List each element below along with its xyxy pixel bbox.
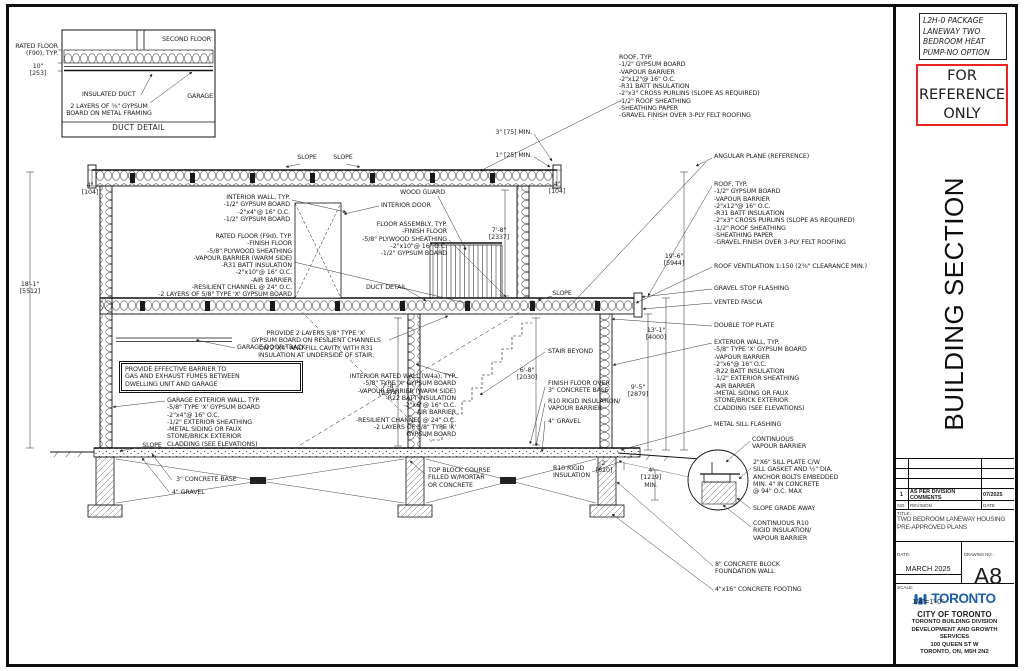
note-sill-plate: 2"X6" SILL PLATE C/W SILL GASKET AND ½" …	[753, 459, 865, 495]
reference-line: FOR	[947, 67, 977, 86]
package-line: PUMP-NO OPTION	[923, 48, 1003, 59]
package-line: L2H-0 PACKAGE	[923, 16, 1003, 27]
dim-9-5: 9'-5" [2879]	[623, 384, 653, 399]
note-cont-vb: CONTINUOUS VAPOUR BARRIER	[752, 436, 834, 451]
package-label-box: L2H-0 PACKAGE LANEWAY TWO BEDROOM HEAT P…	[919, 13, 1007, 60]
project-title: TWO BEDROOM LANEWAY HOUSING PRE-APPROVED…	[897, 516, 1012, 532]
org-line: SERVICES	[895, 634, 1014, 642]
dim-18-1: 18'-1" [5512]	[10, 281, 50, 296]
note-two-layers-gypsum: 2 LAYERS OF ⅝" GYPSUM BOARD ON METAL FRA…	[52, 103, 166, 118]
scale-cell: SCALE: 1/4"=1'-0"	[895, 574, 961, 607]
note-double-top-plate: DOUBLE TOP PLATE	[714, 322, 816, 329]
org-line: TORONTO BUILDING DIVISION	[895, 619, 1014, 627]
label-slope-top-2: SLOPE	[327, 154, 359, 161]
sheet-title-text: BUILDING SECTION	[939, 177, 970, 431]
dim-2ft: 2' [610]	[593, 460, 615, 475]
revision-header-row: NO. REVISION DATE	[895, 500, 1014, 509]
note-r10-rigid-vb: R10 RIGID INSULATION/ VAPOUR BARRIER	[548, 398, 646, 413]
revision-row-empty	[895, 468, 1014, 478]
revision-description: AS PER DIVISION COMMENTS	[909, 489, 981, 500]
duct-detail-caption: DUCT DETAIL	[62, 124, 215, 131]
drawing-sheet: SECOND FLOOR RATED FLOOR (F90), TYP. 10"…	[0, 0, 1024, 671]
dim-13-1: 13'-1" [4000]	[641, 327, 671, 342]
note-interior-wall: INTERIOR WALL, TYP. -1/2" GYPSUM BOARD -…	[160, 194, 290, 223]
date-label: DATE:	[897, 552, 910, 557]
title-panel: L2H-0 PACKAGE LANEWAY TWO BEDROOM HEAT P…	[895, 4, 1016, 667]
note-insulated-duct: INSULATED DUCT	[82, 91, 146, 98]
revision-row-empty	[895, 458, 1014, 468]
label-slope-left: SLOPE	[136, 442, 168, 449]
note-floor-assembly: FLOOR ASSEMBLY, TYP. -FINISH FLOOR -5/8"…	[317, 221, 447, 257]
title-block: 1 AS PER DIVISION COMMENTS 07/2025 NO. R…	[895, 458, 1014, 669]
note-gravel-stop: GRAVEL STOP FLASHING	[714, 285, 826, 292]
org-line: DEVELOPMENT AND GROWTH	[895, 627, 1014, 635]
reference-line: ONLY	[943, 105, 980, 124]
note-garage: GARAGE	[175, 93, 213, 100]
note-metal-sill: METAL SILL FLASHING	[714, 421, 826, 428]
dim-4ft: 4' [1219] MIN.	[637, 467, 665, 489]
label-slope-right: SLOPE	[546, 290, 578, 297]
revision-number: 1	[895, 489, 909, 500]
drawing-number: A8	[964, 563, 1012, 590]
dim-19-6: 19'-6" [5944]	[659, 253, 689, 268]
note-cont-r10: CONTINUOUS R10 RIGID INSULATION/ VAPOUR …	[753, 520, 845, 542]
for-reference-only-stamp: FOR REFERENCE ONLY	[916, 64, 1008, 126]
dim-7-8-upper: 7'-8" [2337]	[486, 227, 512, 242]
date-cell: DATE: MARCH 2025	[895, 542, 961, 574]
note-angular-plane: ANGULAR PLANE (REFERENCE)	[714, 153, 846, 160]
note-provide-2-layers: PROVIDE 2 LAYERS 5/8" TYPE 'X' GYPSUM BO…	[243, 330, 389, 359]
dim-4in-right: 4" [104]	[546, 181, 568, 196]
note-roof-vent: ROOF VENTILATION 1:150 (2⅜" CLEARANCE MI…	[714, 263, 886, 270]
dim-7-8-lower: 7'-8" [2374]	[376, 383, 402, 398]
dim-10in: 10" [253]	[22, 63, 54, 78]
note-roof-typ-right: ROOF, TYP. -1/2" GYPSUM BOARD -VAPOUR BA…	[714, 181, 886, 247]
note-concrete-base: 3" CONCRETE BASE	[176, 476, 268, 483]
revision-header-date: DATE	[981, 501, 1014, 509]
note-conc-footing: 4"x16" CONCRETE FOOTING	[715, 586, 833, 593]
note-vented-fascia: VENTED FASCIA	[714, 299, 806, 306]
drawing-no-cell: DRAWING NO.: A8	[962, 542, 1014, 583]
date-scale-section: DATE: MARCH 2025 SCALE: 1/4"=1'-0" DRAWI…	[895, 541, 1014, 583]
dim-75-min: 3" [75] MIN.	[462, 129, 532, 136]
note-gravel-left: 4" GRAVEL	[172, 489, 232, 496]
scale-value: 1/4"=1'-0"	[897, 597, 959, 606]
note-duct-detail-ref: DUCT DETAIL	[366, 284, 426, 291]
note-rated-floor: RATED FLOOR (F9d), TYP. -FINISH FLOOR -5…	[92, 233, 292, 299]
note-top-block: TOP BLOCK COURSE FILLED W/MORTAR OR CONC…	[428, 467, 510, 489]
duct-detail-drawing	[58, 30, 215, 137]
sheet-title-vertical: BUILDING SECTION	[895, 152, 1014, 456]
dim-4in-left: 4" [104]	[79, 182, 101, 197]
note-second-floor: SECOND FLOOR	[143, 36, 211, 43]
note-ext-wall: EXTERIOR WALL, TYP. -5/8" TYPE 'X' GYPSU…	[714, 339, 856, 412]
title-section: TITLE: TWO BEDROOM LANEWAY HOUSING PRE-A…	[895, 509, 1014, 541]
label-slope-top-1: SLOPE	[291, 154, 323, 161]
note-garage-ext-wall: GARAGE EXTERIOR WALL, TYP. -5/8" TYPE 'X…	[167, 397, 307, 448]
org-line: 100 QUEEN ST W	[895, 642, 1014, 650]
note-roof-typ-top: ROOF, TYP. -1/2" GYPSUM BOARD -VAPOUR BA…	[619, 54, 781, 120]
note-rated-floor-detail: RATED FLOOR (F90), TYP.	[6, 43, 58, 58]
revision-row-empty	[895, 478, 1014, 488]
note-conc-block: 8" CONCRETE BLOCK FOUNDATION WALL	[715, 561, 811, 576]
reference-line: REFERENCE	[919, 86, 1005, 105]
package-line: LANEWAY TWO	[923, 27, 1003, 38]
org-line: CITY OF TORONTO	[895, 610, 1014, 619]
revision-row: 1 AS PER DIVISION COMMENTS 07/2025	[895, 488, 1014, 500]
package-line: BEDROOM HEAT	[923, 37, 1003, 48]
date-value: MARCH 2025	[897, 564, 959, 573]
dim-6-8: 6'-8" [2030]	[514, 367, 540, 382]
revision-header-no: NO.	[895, 501, 909, 509]
note-wood-guard: WOOD GUARD	[400, 189, 462, 196]
revision-date: 07/2025	[981, 489, 1014, 500]
revision-header-desc: REVISION	[909, 501, 981, 509]
note-gravel-mid: 4" GRAVEL	[548, 418, 608, 425]
org-line: TORONTO, ON, M5H 2N2	[895, 649, 1014, 657]
note-interior-door: INTERIOR DOOR	[381, 202, 451, 209]
scale-label: SCALE:	[897, 585, 913, 590]
dim-25-min: 1" [25] MIN.	[462, 152, 532, 159]
note-stair-beyond: STAIR BEYOND	[548, 348, 618, 355]
note-barrier-box: PROVIDE EFFECTIVE BARRIER TO GAS AND EXH…	[121, 363, 301, 391]
note-slope-grade: SLOPE GRADE AWAY	[753, 505, 849, 512]
drawing-no-label: DRAWING NO.:	[964, 552, 994, 557]
